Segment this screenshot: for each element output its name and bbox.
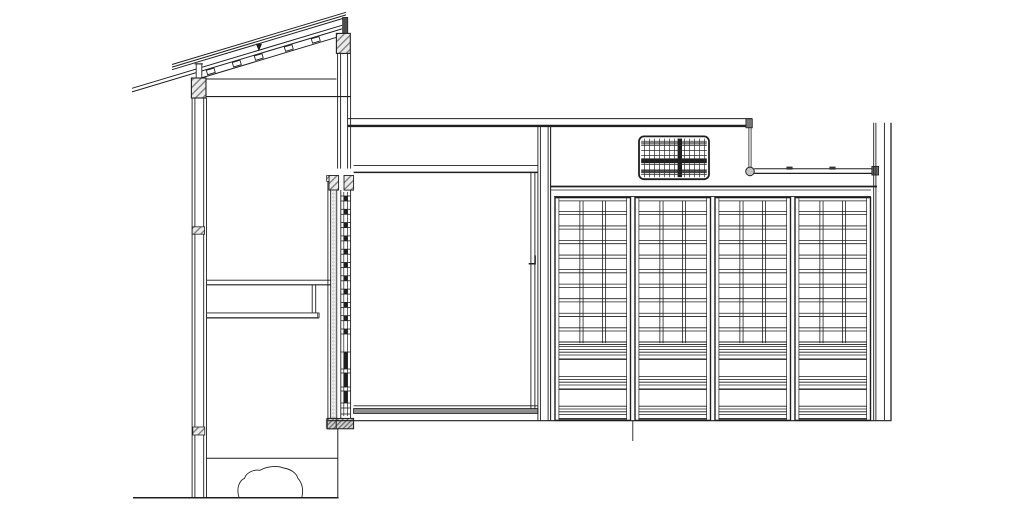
roof-anchor-bolt (195, 64, 203, 80)
interior-shelves (207, 280, 331, 318)
shoji-panel (635, 198, 711, 421)
shoji-panel (715, 198, 791, 421)
shoji-panel (795, 198, 871, 421)
roof-sheathing-lines (132, 25, 342, 92)
screen-track-section (326, 176, 354, 429)
transom-vent-lattice (639, 136, 709, 179)
koshi-rails (719, 347, 787, 419)
ceiling-beam (348, 119, 752, 128)
architectural-drawing-canvas (0, 0, 1024, 512)
koshi-rails (559, 347, 627, 419)
right-wall-posts (874, 123, 891, 421)
shoji-head-rail (551, 187, 877, 197)
fusuma-track (354, 406, 538, 414)
tie-beam (206, 79, 351, 97)
sill-section (326, 418, 354, 428)
fusuma-stile (531, 172, 535, 408)
right-post-cut-section (336, 33, 350, 168)
center-post (538, 127, 551, 421)
shoji-panel-row (555, 198, 871, 421)
shed-roof (132, 12, 348, 92)
stepping-stone (238, 466, 303, 497)
roof-end-cap (343, 17, 348, 34)
koshi-rails (639, 347, 707, 419)
wall-tie-blocks (192, 227, 205, 435)
hanging-rod (746, 127, 879, 176)
roof-rafter-line (196, 37, 337, 79)
shoji-panel (555, 198, 631, 421)
door-pull-icon (529, 255, 535, 263)
shoji-screen-section (341, 190, 351, 418)
koshi-rails (799, 347, 867, 419)
fusuma-lintel-lines (354, 166, 538, 173)
amado-screen-section (331, 190, 337, 418)
section-drawing (0, 0, 1024, 512)
left-wall-studs (192, 98, 206, 498)
fusuma-door (354, 166, 538, 414)
left-post-cut-section (191, 78, 206, 98)
